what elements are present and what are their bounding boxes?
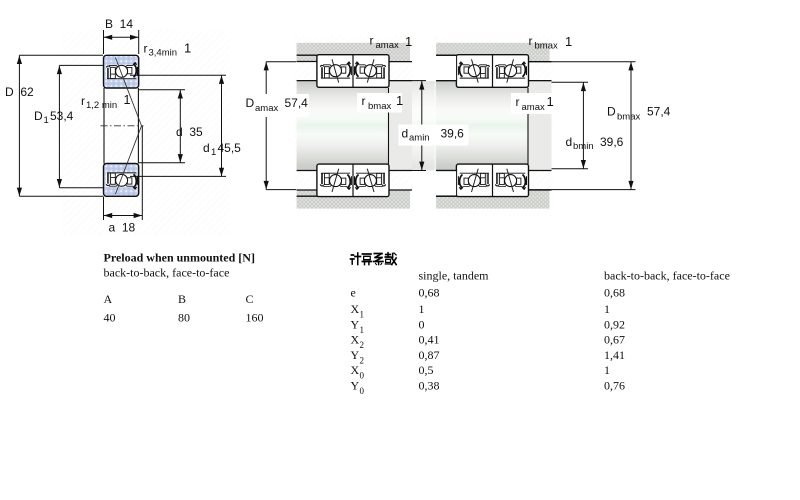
svg-text:3,4min: 3,4min <box>149 48 178 59</box>
svg-text:1: 1 <box>211 147 216 158</box>
svg-text:r: r <box>144 42 148 56</box>
svg-text:Y: Y <box>351 379 360 393</box>
svg-text:B: B <box>178 292 186 306</box>
svg-text:1: 1 <box>604 302 610 316</box>
svg-text:2: 2 <box>360 340 365 350</box>
svg-text:39,6: 39,6 <box>600 135 624 149</box>
svg-text:0,5: 0,5 <box>419 363 434 377</box>
svg-text:bmax: bmax <box>368 101 391 112</box>
svg-text:bmax: bmax <box>535 40 558 51</box>
svg-text:0,87: 0,87 <box>419 348 440 362</box>
svg-text:1: 1 <box>396 93 403 108</box>
svg-text:Preload when unmounted [N]: Preload when unmounted [N] <box>104 251 255 265</box>
svg-text:45,5: 45,5 <box>218 141 242 155</box>
svg-text:D: D <box>246 96 255 110</box>
svg-text:amax: amax <box>255 103 278 114</box>
svg-text:d: d <box>402 127 409 141</box>
svg-text:0: 0 <box>360 386 365 396</box>
svg-text:0,41: 0,41 <box>419 333 440 347</box>
svg-text:single, tandem: single, tandem <box>419 269 490 283</box>
svg-text:1: 1 <box>44 115 49 126</box>
svg-text:a 18: a 18 <box>109 221 136 235</box>
svg-text:amin: amin <box>409 133 430 144</box>
svg-text:1: 1 <box>124 93 131 107</box>
svg-text:1: 1 <box>419 302 425 316</box>
svg-text:1,2 min: 1,2 min <box>86 100 117 111</box>
svg-text:r: r <box>362 94 366 108</box>
svg-text:D 62: D 62 <box>5 85 34 99</box>
svg-text:A: A <box>104 292 113 306</box>
svg-text:B 14: B 14 <box>105 17 133 31</box>
svg-text:r: r <box>516 95 520 109</box>
svg-text:1,41: 1,41 <box>604 348 625 362</box>
svg-text:bmin: bmin <box>573 141 594 152</box>
svg-text:0: 0 <box>419 317 425 331</box>
svg-text:1: 1 <box>405 34 412 49</box>
svg-text:0,92: 0,92 <box>604 317 625 331</box>
svg-text:d: d <box>203 141 210 155</box>
svg-text:0,67: 0,67 <box>604 333 625 347</box>
svg-text:D: D <box>34 109 43 123</box>
svg-text:back-to-back, face-to-face: back-to-back, face-to-face <box>604 269 730 283</box>
svg-text:0,76: 0,76 <box>604 379 625 393</box>
svg-text:1: 1 <box>184 41 191 56</box>
svg-text:57,4: 57,4 <box>285 96 309 110</box>
svg-text:1: 1 <box>360 325 365 335</box>
svg-text:d 35: d 35 <box>176 125 203 139</box>
svg-text:D: D <box>607 105 616 119</box>
svg-text:Y: Y <box>351 348 360 362</box>
svg-text:1: 1 <box>360 310 365 320</box>
svg-text:r: r <box>529 34 533 48</box>
svg-text:2: 2 <box>360 355 365 365</box>
svg-text:X: X <box>351 302 360 316</box>
svg-text:amax: amax <box>376 40 399 51</box>
svg-text:r: r <box>370 34 374 48</box>
svg-text:back-to-back, face-to-face: back-to-back, face-to-face <box>104 266 230 280</box>
svg-text:0,68: 0,68 <box>419 286 440 300</box>
svg-text:X: X <box>351 363 360 377</box>
svg-text:amax: amax <box>522 102 545 113</box>
svg-text:0,38: 0,38 <box>419 379 440 393</box>
svg-text:160: 160 <box>246 311 264 325</box>
svg-text:C: C <box>246 292 254 306</box>
svg-text:1: 1 <box>547 94 554 109</box>
svg-text:bmax: bmax <box>617 112 640 123</box>
svg-text:40: 40 <box>104 311 116 325</box>
svg-text:1: 1 <box>565 34 572 49</box>
svg-text:0: 0 <box>360 371 365 381</box>
svg-text:X: X <box>351 333 360 347</box>
svg-text:80: 80 <box>178 311 190 325</box>
svg-text:39,6: 39,6 <box>441 127 465 141</box>
svg-text:53,4: 53,4 <box>50 109 74 123</box>
svg-text:57,4: 57,4 <box>647 105 671 119</box>
svg-text:Y: Y <box>351 317 360 331</box>
svg-text:d: d <box>566 135 573 149</box>
svg-text:r: r <box>81 94 85 108</box>
svg-text:e: e <box>351 286 356 300</box>
svg-text:1: 1 <box>604 363 610 377</box>
svg-text:0,68: 0,68 <box>604 286 625 300</box>
